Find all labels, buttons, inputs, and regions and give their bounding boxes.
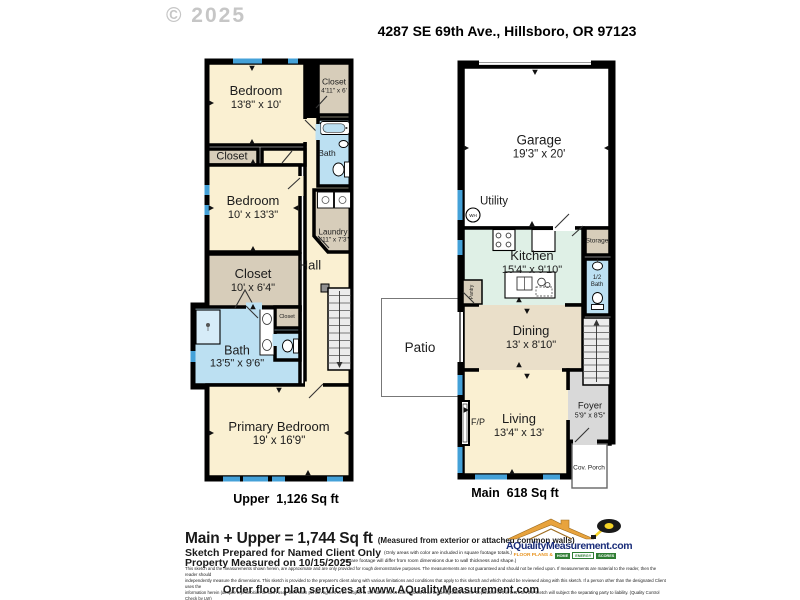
logo-tagline: FLOOR PLANS & HOME ENERGY SCORES (506, 552, 624, 559)
kitchen-label: Kitchen15'4" x 9'10" (502, 249, 562, 277)
toilet-icon (283, 339, 299, 353)
stairs-up (583, 318, 610, 385)
total-sqft-value: Main + Upper = 1,744 Sq ft (185, 530, 373, 547)
logo-roof-tape-icon (506, 516, 624, 540)
sink-icon (339, 141, 348, 148)
main-floor-plan: WH (457, 60, 617, 492)
pantry-label: Pantry (470, 285, 476, 299)
fireplace-label: F/P (471, 417, 485, 427)
storage-label: Storage (586, 237, 609, 244)
water-heater-icon: WH (466, 208, 480, 222)
logo-tag-floorplans: FLOOR PLANS & (514, 553, 553, 558)
shower-icon (196, 310, 220, 344)
upper-floor-plan: Bedroom13'8" x 10' Closet4'11" x 6' Bath… (188, 58, 358, 482)
color-areas-note: (Only areas with color are included in s… (384, 551, 512, 556)
main-sqft-caption: Main 618 Sq ft (429, 486, 601, 500)
bath-main-label: Bath13'5" x 9'6" (210, 343, 264, 370)
logo-tag-home: HOME (555, 553, 570, 559)
logo-tag-energy: ENERGY (572, 552, 594, 559)
hall-label: Hall (299, 259, 321, 274)
bathtub-icon (321, 122, 350, 135)
bath-top-label: Bath (318, 149, 336, 159)
utility-label: Utility (480, 195, 508, 208)
logo-tag-scores: SCORES (596, 553, 616, 559)
property-address: 4287 SE 69th Ave., Hillsboro, OR 97123 (307, 23, 707, 39)
closet-strip-label: Closet (216, 151, 247, 164)
garage-door (479, 60, 591, 66)
hall-nook-area (262, 149, 305, 165)
sqft-difference-note: (Square footage will differ from room di… (341, 559, 516, 564)
living-label: Living13'4" x 13' (494, 412, 544, 440)
patio-slider-door (457, 312, 463, 362)
closet-top-label: Closet4'11" x 6' (321, 77, 347, 94)
foyer-label: Foyer5'9" x 8'5" (575, 402, 606, 421)
bedroom2-label: Bedroom10' x 13'3" (227, 194, 280, 222)
logo-site-text: AQualityMeasurement.com (506, 540, 624, 552)
floor-plan-sheet: © 2025 4287 SE 69th Ave., Hillsboro, OR … (0, 0, 800, 600)
company-logo: AQualityMeasurement.com FLOOR PLANS & HO… (506, 516, 624, 545)
closet-small-label: Closet (279, 314, 295, 320)
garage-label: Garage19'3" x 20' (513, 133, 566, 162)
fireplace-icon (461, 401, 469, 445)
copyright-watermark: © 2025 (166, 4, 246, 28)
upper-sqft-caption: Upper 1,126 Sq ft (200, 492, 372, 506)
toilet-icon (592, 293, 604, 310)
toilet-icon (333, 162, 350, 177)
closet-mid-label: Closet10' x 6'4" (231, 267, 275, 295)
svg-text:WH: WH (469, 213, 477, 218)
covered-porch-label: Cov. Porch (573, 464, 605, 471)
laundry-label: Laundry4'11" x 7'3" (317, 228, 349, 245)
dining-label: Dining13' x 8'10" (506, 324, 556, 352)
bedroom1-label: Bedroom13'8" x 10' (230, 84, 283, 112)
primary-bedroom-label: Primary Bedroom19' x 16'9" (228, 420, 329, 448)
order-services-line: Order floor plan services at www.AQualit… (185, 584, 577, 596)
patio-area: Patio (381, 298, 459, 397)
disclaimer-line1: This sketch and the measurements shown h… (185, 566, 667, 578)
half-bath-label: 1/2 Bath (589, 275, 605, 289)
